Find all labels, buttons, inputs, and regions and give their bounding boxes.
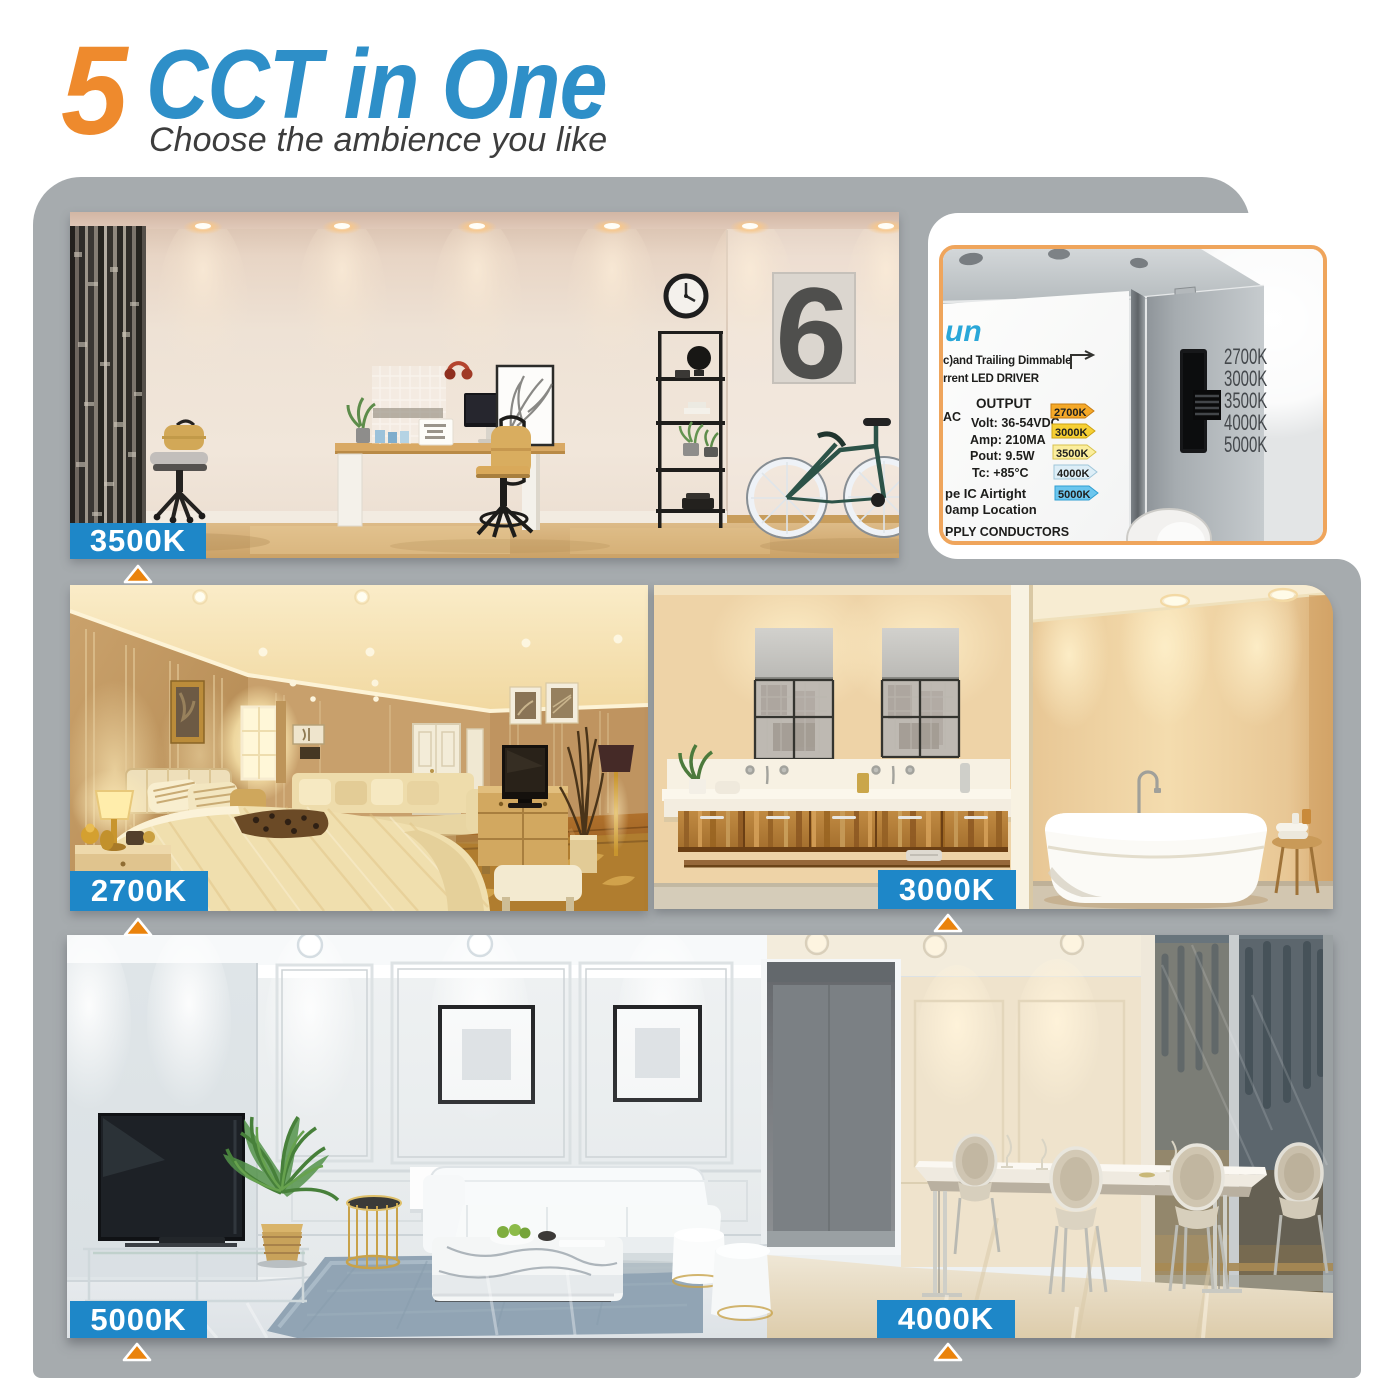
svg-text:rrent LED DRIVER: rrent LED DRIVER [943,373,1040,385]
svg-text:3000K: 3000K [1224,366,1268,391]
svg-text:Amp: 210MA: Amp: 210MA [970,433,1046,447]
svg-text:un: un [945,315,982,348]
svg-text:4000K: 4000K [1224,410,1268,435]
svg-text:AC: AC [943,410,961,424]
svg-text:PPLY CONDUCTORS: PPLY CONDUCTORS [945,525,1069,539]
svg-text:OUTPUT: OUTPUT [976,396,1032,411]
svg-text:2700K: 2700K [1054,407,1086,419]
svg-text:Pout: 9.5W: Pout: 9.5W [970,449,1035,463]
svg-text:IMENTATIO: IMENTATIO [945,539,1012,541]
svg-text:0amp Location: 0amp Location [945,502,1037,517]
svg-text:6: 6 [771,258,853,409]
svg-text:Volt: 36-54VDC: Volt: 36-54VDC [971,416,1060,430]
svg-text:5000K: 5000K [1224,432,1268,457]
svg-text:c)and Trailing Dimmable: c)and Trailing Dimmable [943,355,1071,367]
svg-text:4000K: 4000K [1057,468,1089,480]
svg-text:pe IC Airtight: pe IC Airtight [945,486,1027,501]
svg-text:5000K: 5000K [1058,489,1090,501]
svg-text:2700K: 2700K [1224,344,1268,369]
svg-text:3000K: 3000K [1055,427,1087,439]
svg-text:3500K: 3500K [1056,448,1088,460]
svg-text:3500K: 3500K [1224,388,1268,413]
svg-text:Tc: +85°C: Tc: +85°C [972,466,1029,480]
